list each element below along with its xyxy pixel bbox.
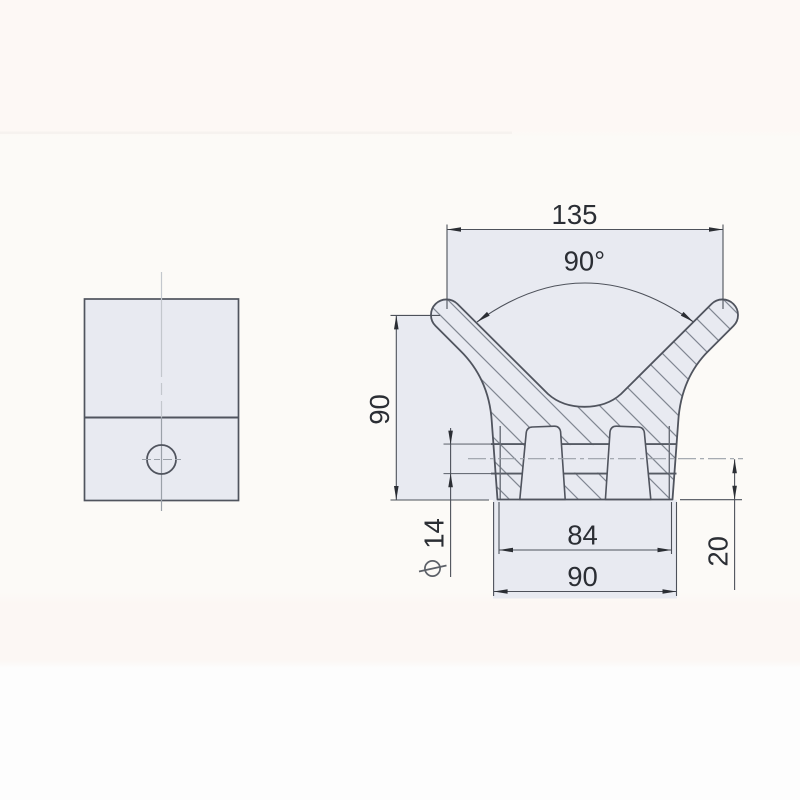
svg-text:20: 20 — [702, 536, 733, 567]
svg-text:84: 84 — [567, 520, 598, 551]
svg-text:135: 135 — [552, 199, 598, 230]
svg-text:90: 90 — [567, 561, 598, 592]
svg-text:90°: 90° — [564, 246, 606, 277]
svg-text:90: 90 — [364, 394, 395, 425]
svg-text:14: 14 — [419, 518, 450, 549]
